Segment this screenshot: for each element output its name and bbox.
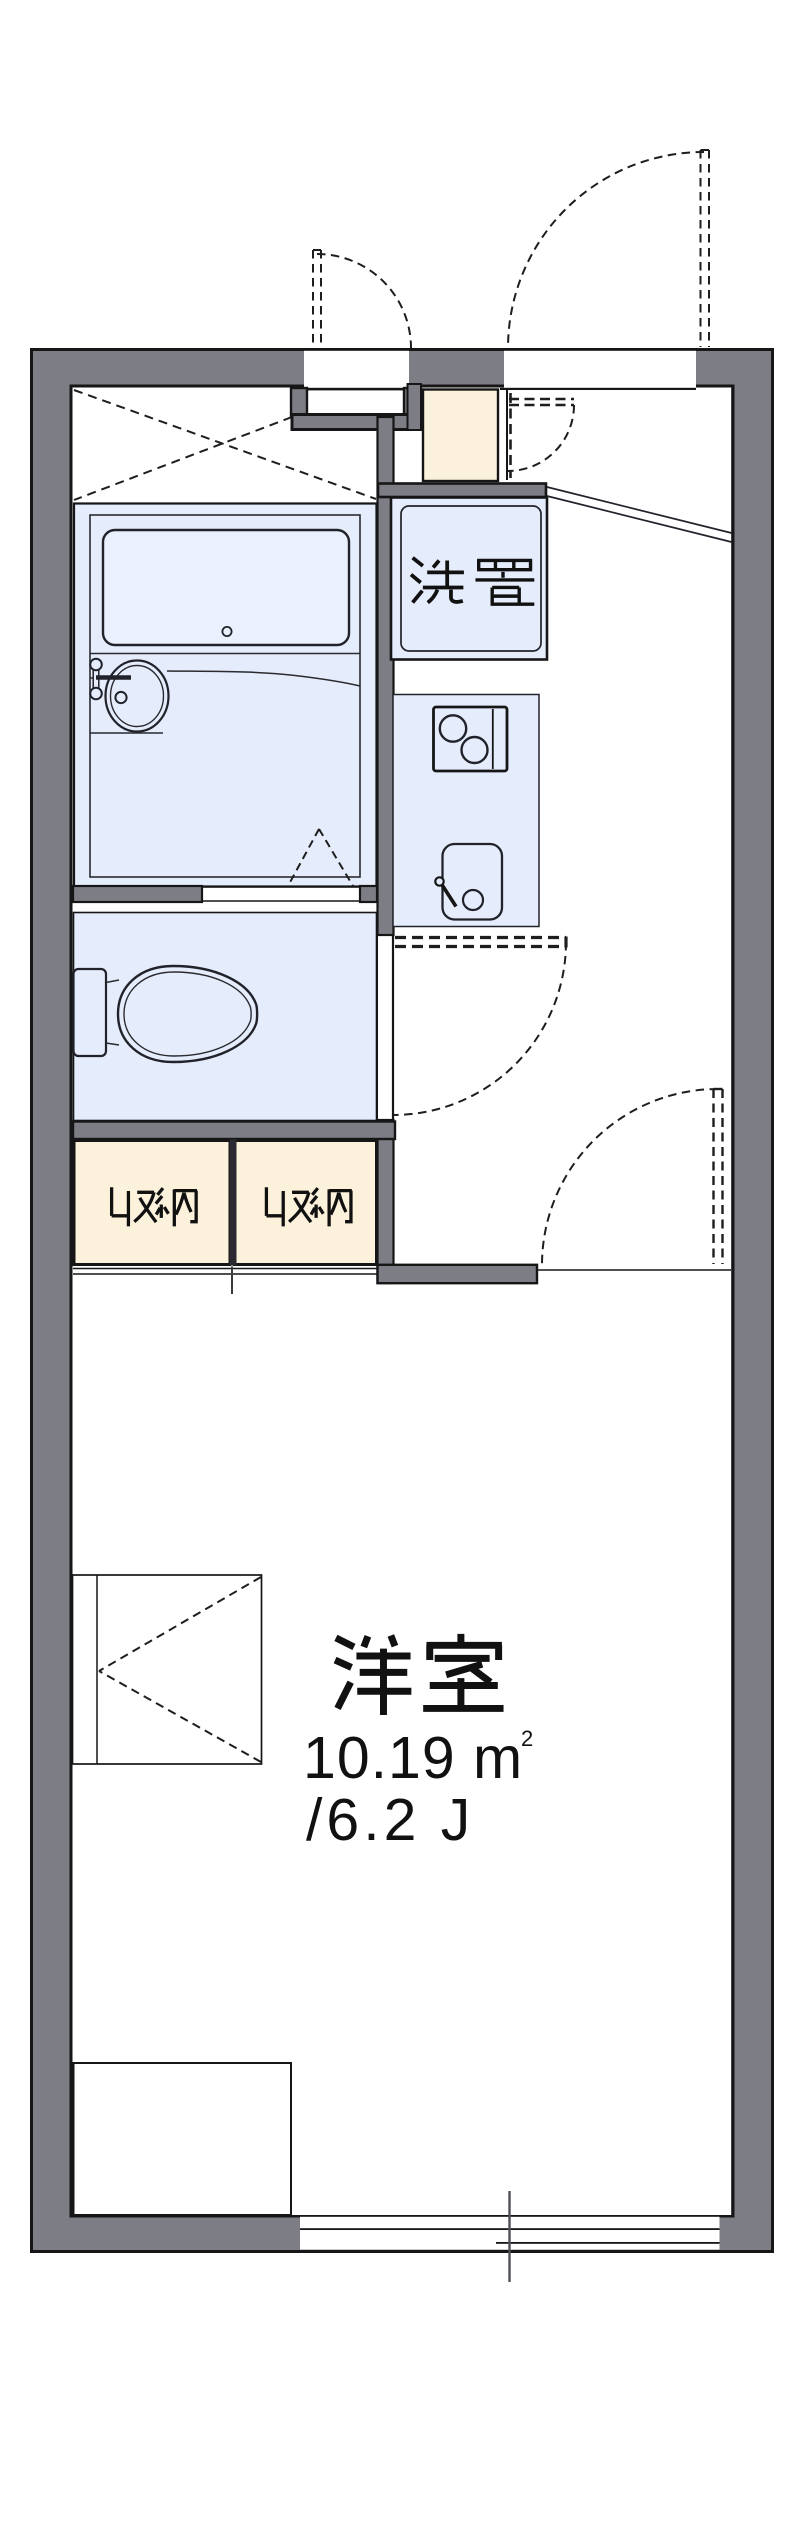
svg-text:/6.2 J: /6.2 J [306,1787,474,1853]
svg-text:2: 2 [521,1726,533,1751]
svg-text:10.19 m: 10.19 m [303,1725,523,1791]
